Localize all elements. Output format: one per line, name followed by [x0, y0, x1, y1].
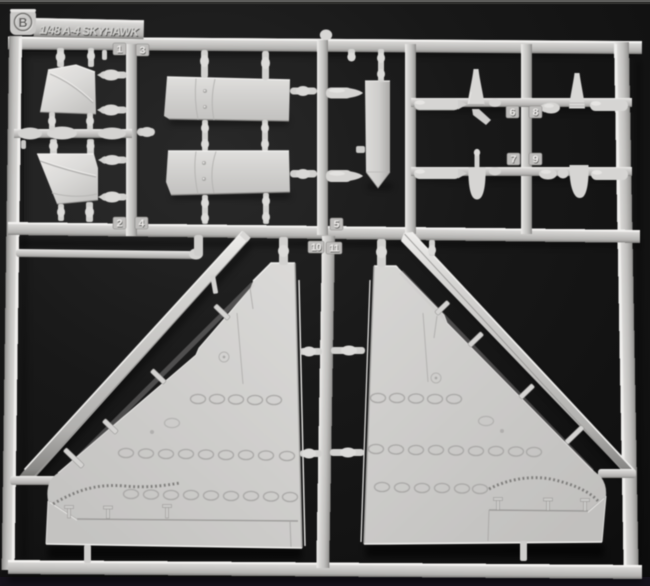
svg-text:6: 6 — [510, 107, 516, 119]
svg-text:4: 4 — [139, 218, 145, 230]
svg-text:B: B — [18, 16, 27, 30]
svg-text:8: 8 — [533, 107, 539, 119]
svg-text:10: 10 — [311, 243, 322, 254]
svg-text:1/48 A-4 SKYHAWK: 1/48 A-4 SKYHAWK — [39, 23, 140, 39]
svg-text:3: 3 — [140, 45, 146, 57]
svg-text:2: 2 — [117, 218, 123, 230]
svg-text:1: 1 — [117, 44, 123, 56]
svg-text:7: 7 — [511, 154, 517, 166]
svg-text:9: 9 — [533, 154, 539, 166]
svg-text:11: 11 — [329, 244, 340, 255]
svg-text:5: 5 — [334, 219, 340, 231]
